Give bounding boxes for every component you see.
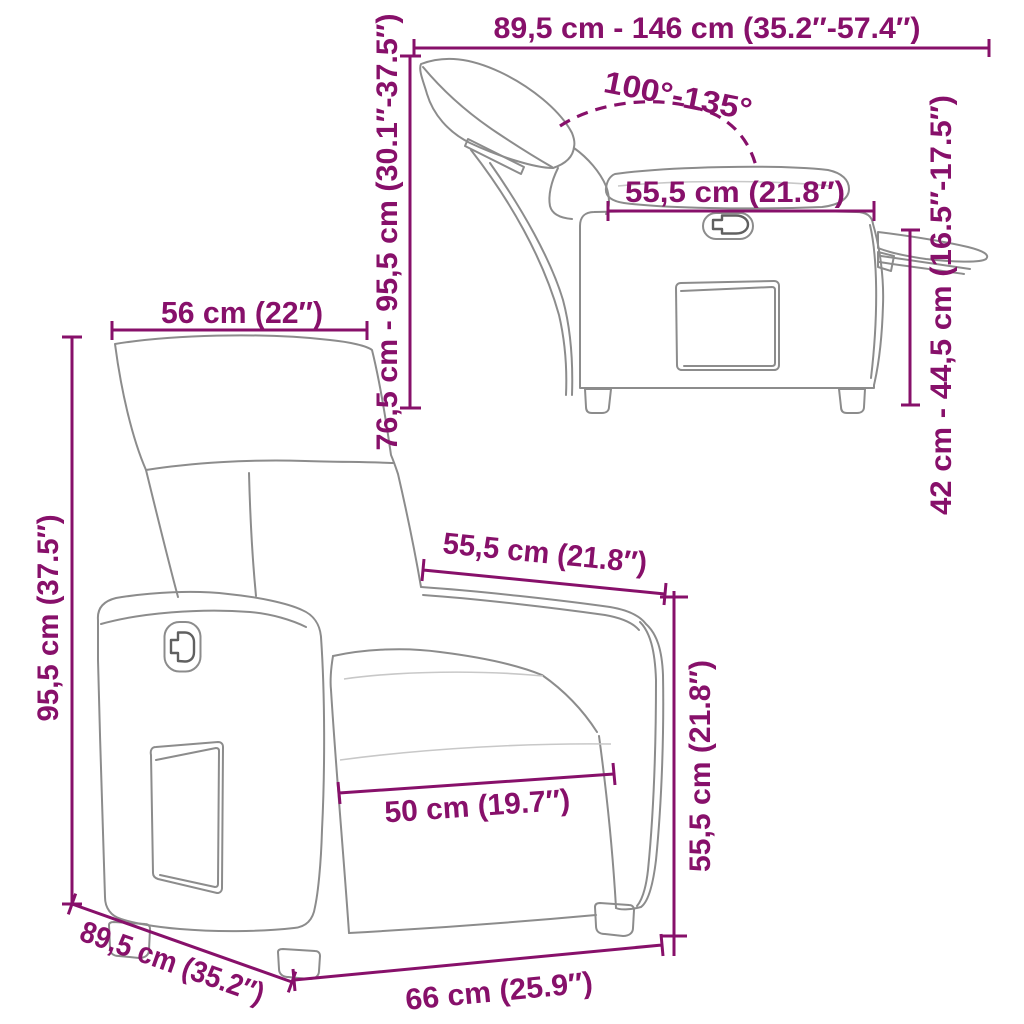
svg-text:50 cm (19.7″): 50 cm (19.7″) <box>383 784 571 830</box>
svg-text:56 cm (22″): 56 cm (22″) <box>161 295 323 330</box>
svg-text:42 cm - 44,5 cm (16.5″-17.5″): 42 cm - 44,5 cm (16.5″-17.5″) <box>925 95 958 515</box>
svg-text:76,5 cm - 95,5 cm (30.1″-37.5″: 76,5 cm - 95,5 cm (30.1″-37.5″) <box>371 14 404 451</box>
svg-text:55,5 cm (21.8″): 55,5 cm (21.8″) <box>625 176 845 209</box>
svg-text:89,5 cm - 146 cm (35.2″-57.4″): 89,5 cm - 146 cm (35.2″-57.4″) <box>494 12 921 45</box>
svg-text:66 cm (25.9″): 66 cm (25.9″) <box>404 966 594 1017</box>
svg-text:55,5 cm (21.8″): 55,5 cm (21.8″) <box>441 527 648 580</box>
svg-text:55,5 cm (21.8″): 55,5 cm (21.8″) <box>684 660 717 872</box>
svg-text:95,5 cm (37.5″): 95,5 cm (37.5″) <box>32 515 65 722</box>
svg-text:100°-135°: 100°-135° <box>601 64 755 127</box>
